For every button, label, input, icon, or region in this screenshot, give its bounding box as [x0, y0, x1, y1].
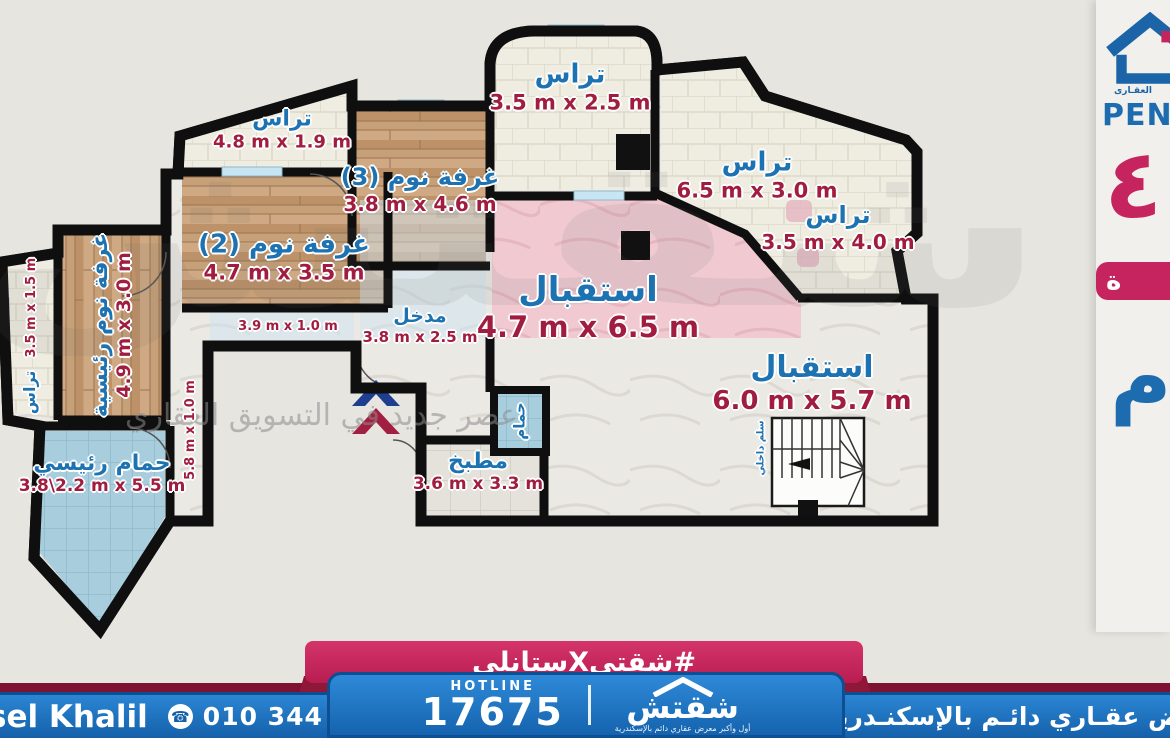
big-glyph-pink: ٤: [1104, 128, 1163, 240]
room-dims: 4.7 m x 6.5 m: [477, 310, 699, 345]
room-dims: 6.5 m x 3.0 m: [677, 178, 838, 203]
room-dims: 3.8\2.2 m x 5.5 m: [19, 476, 186, 496]
room-label-reception1: استقبال 4.7 m x 6.5 m: [477, 271, 699, 345]
room-label-reception2: استقبال 6.0 m x 5.7 m: [712, 351, 911, 417]
flyer: شقتش عصر جديد في التسويق العقاري تراس 3.…: [0, 0, 1170, 738]
room-name: غرفة نوم (2): [198, 230, 370, 260]
room-label-master-bathroom: حمام رئيسي 3.8\2.2 m x 5.5 m: [19, 451, 186, 497]
footer-agent-bar: sel Khalil ☎ 010 344 838 69: [0, 692, 336, 738]
pillar: [621, 231, 650, 260]
phone-icon: ☎: [168, 704, 193, 729]
room-label-terrace-ne: تراس 6.5 m x 3.0 m: [677, 148, 838, 203]
agency-house-logo-icon: [1102, 12, 1170, 88]
room-name: حمام: [511, 402, 528, 440]
room-label-kitchen: مطبخ 3.6 m x 3.3 m: [413, 449, 543, 495]
room-label-terrace-w: تراس 3.5 m x 1.5 m: [20, 258, 40, 414]
brand-name: شقتش: [626, 691, 739, 723]
room-name: تراس: [21, 371, 39, 415]
big-glyph-blue: م: [1110, 328, 1170, 426]
expo-text: رض عقـاري دائـم بالإسكنـدرية: [836, 702, 1170, 731]
room-label-bedroom2: غرفة نوم (2) 4.7 m x 3.5 m: [198, 230, 370, 285]
room-name: تراس: [761, 202, 914, 230]
room-label-bedroom3: غرفة نوم (3) 3.8 m x 4.6 m: [341, 164, 500, 216]
room-name: تراس: [213, 107, 351, 132]
side-badge: ة: [1096, 262, 1170, 300]
room-dims: 6.0 m x 5.7 m: [712, 386, 911, 417]
room-dims: 3.8 m x 2.5 m: [363, 328, 478, 346]
room-label-bathroom: حمام: [511, 402, 528, 440]
room-dims: 3.5 m x 2.5 m: [490, 90, 651, 115]
room-name: غرفة نوم (3): [341, 164, 500, 192]
room-name: تراس: [490, 60, 651, 90]
room-name: استقبال: [477, 271, 699, 310]
room-label-master-bedroom: غرفة نوم رئيسية 4.9 m x 3.0 m: [88, 233, 136, 418]
room-name: غرفة نوم رئيسية: [88, 233, 113, 418]
room-label-terrace-nw: تراس 4.8 m x 1.9 m: [213, 107, 351, 154]
footer-expo-bar: رض عقـاري دائـم بالإسكنـدرية: [836, 692, 1170, 738]
room-name: تراس: [677, 148, 838, 178]
side-badge-text: ة: [1106, 266, 1121, 296]
room-label-entrance: مدخل 3.8 m x 2.5 m: [363, 306, 478, 346]
side-panel: العقـارى PEN ٤ م ة: [1096, 0, 1170, 632]
room-dims: 4.7 m x 3.5 m: [198, 260, 370, 285]
room-label-terrace-top: تراس 3.5 m x 2.5 m: [490, 60, 651, 115]
divider: [588, 685, 591, 725]
room-dims: 3.6 m x 3.3 m: [413, 474, 543, 494]
room-name: مدخل: [363, 306, 478, 328]
room-dims: 3.8 m x 4.6 m: [341, 192, 500, 216]
agent-name: sel Khalil: [0, 699, 148, 735]
label-stairs: سلم داخلي: [755, 420, 767, 475]
brand-block: شقتش أول وأكبر معرض عقاري دائم بالإسكندر…: [615, 677, 751, 733]
room-dims: 4.8 m x 1.9 m: [213, 132, 351, 154]
label-corridor-side: 5.8 m x 1.0 m: [183, 380, 199, 480]
room-name: حمام رئيسي: [19, 451, 186, 476]
footer-banner: HOTLINE 17675 شقتش أول وأكبر معرض عقاري …: [327, 672, 845, 738]
room-label-terrace-e: تراس 3.5 m x 4.0 m: [761, 202, 914, 254]
room-name: استقبال: [712, 351, 911, 386]
room-dims: 3.9 m x 1.0 m: [238, 319, 338, 335]
room-dims: 4.9 m x 3.0 m: [113, 233, 136, 418]
label-corridor-top: 3.9 m x 1.0 m: [238, 319, 338, 335]
hotline-number: 17675: [422, 693, 564, 731]
agent-phone: 010 344 838 69: [203, 702, 336, 731]
pillar: [616, 134, 650, 170]
room-name: سلم داخلي: [755, 420, 767, 475]
room-dims: 3.5 m x 4.0 m: [761, 230, 914, 254]
brand-subtitle: أول وأكبر معرض عقاري دائم بالإسكندرية: [615, 725, 751, 733]
staircase: [772, 418, 864, 516]
room-dims: 3.5 m x 1.5 m: [24, 258, 40, 358]
hotline-block: HOTLINE 17675: [422, 680, 564, 731]
agency-logo-caption: العقـارى: [1096, 86, 1170, 96]
room-dims: 5.8 m x 1.0 m: [183, 380, 199, 480]
room-name: مطبخ: [413, 449, 543, 474]
